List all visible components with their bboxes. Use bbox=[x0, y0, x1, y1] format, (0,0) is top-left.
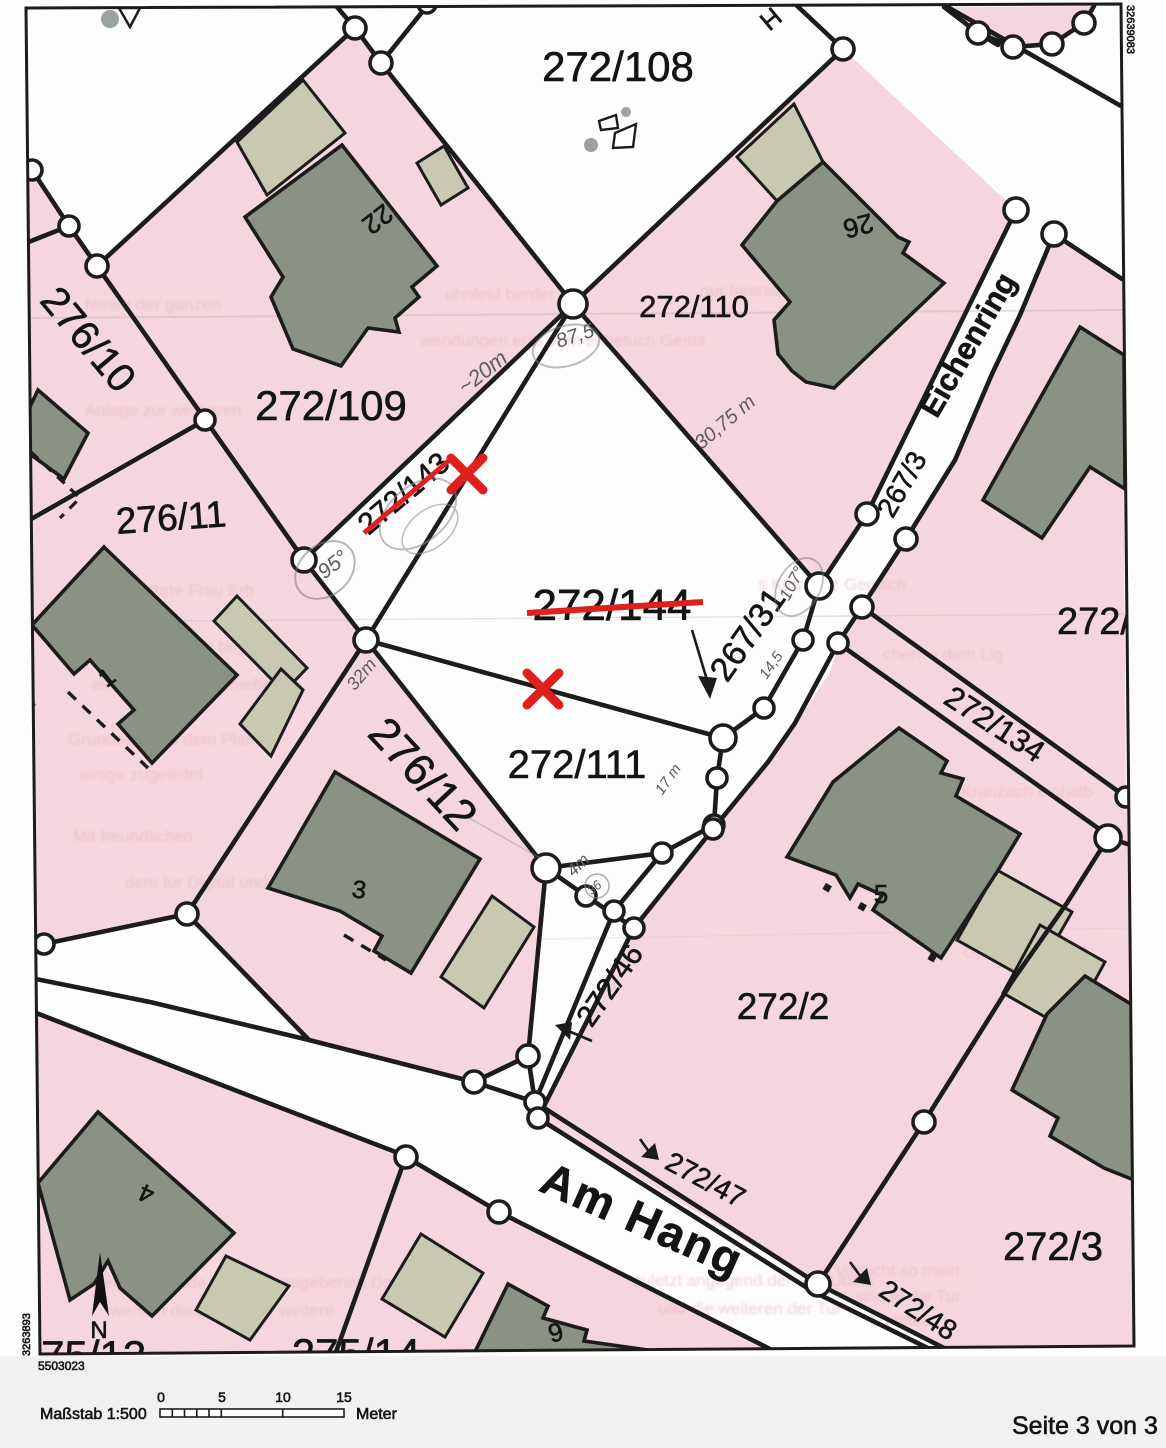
svg-text:272/110: 272/110 bbox=[639, 289, 749, 324]
svg-text:feinen der ganzen: feinen der ganzen bbox=[85, 295, 221, 314]
svg-text:276/11: 276/11 bbox=[115, 493, 228, 542]
svg-text:Anlage zur werbaren: Anlage zur werbaren bbox=[85, 401, 242, 420]
svg-text:272/3: 272/3 bbox=[1003, 1225, 1103, 1269]
svg-text:5: 5 bbox=[874, 879, 888, 909]
svg-text:272/109: 272/109 bbox=[255, 382, 407, 429]
svg-text:Meter: Meter bbox=[356, 1406, 398, 1423]
svg-text:10: 10 bbox=[275, 1389, 291, 1405]
svg-text:5503023: 5503023 bbox=[38, 1359, 85, 1373]
svg-text:272/2: 272/2 bbox=[737, 986, 830, 1027]
svg-text:Maßstab 1:500: Maßstab 1:500 bbox=[40, 1406, 147, 1423]
svg-text:N: N bbox=[90, 1317, 107, 1344]
svg-text:s Kranzach einhalb: s Kranzach einhalb bbox=[948, 782, 1093, 801]
svg-text:272/108: 272/108 bbox=[542, 43, 694, 90]
svg-text:32639083: 32639083 bbox=[1124, 5, 1136, 54]
svg-text:15: 15 bbox=[336, 1389, 352, 1405]
svg-text:uhnfeld berder: uhnfeld berder bbox=[445, 285, 555, 304]
svg-text:0: 0 bbox=[157, 1389, 165, 1405]
svg-text:Seite 3 von 3: Seite 3 von 3 bbox=[1012, 1412, 1158, 1440]
svg-text:Mit freundlichen: Mit freundlichen bbox=[73, 827, 193, 846]
svg-text:chen in dem Lig: chen in dem Lig bbox=[883, 645, 1003, 664]
svg-text:5: 5 bbox=[218, 1389, 226, 1405]
svg-text:einige zugeleitet: einige zugeleitet bbox=[80, 765, 203, 784]
svg-text:272/111: 272/111 bbox=[508, 743, 647, 787]
svg-text:3263893: 3263893 bbox=[21, 1313, 33, 1356]
